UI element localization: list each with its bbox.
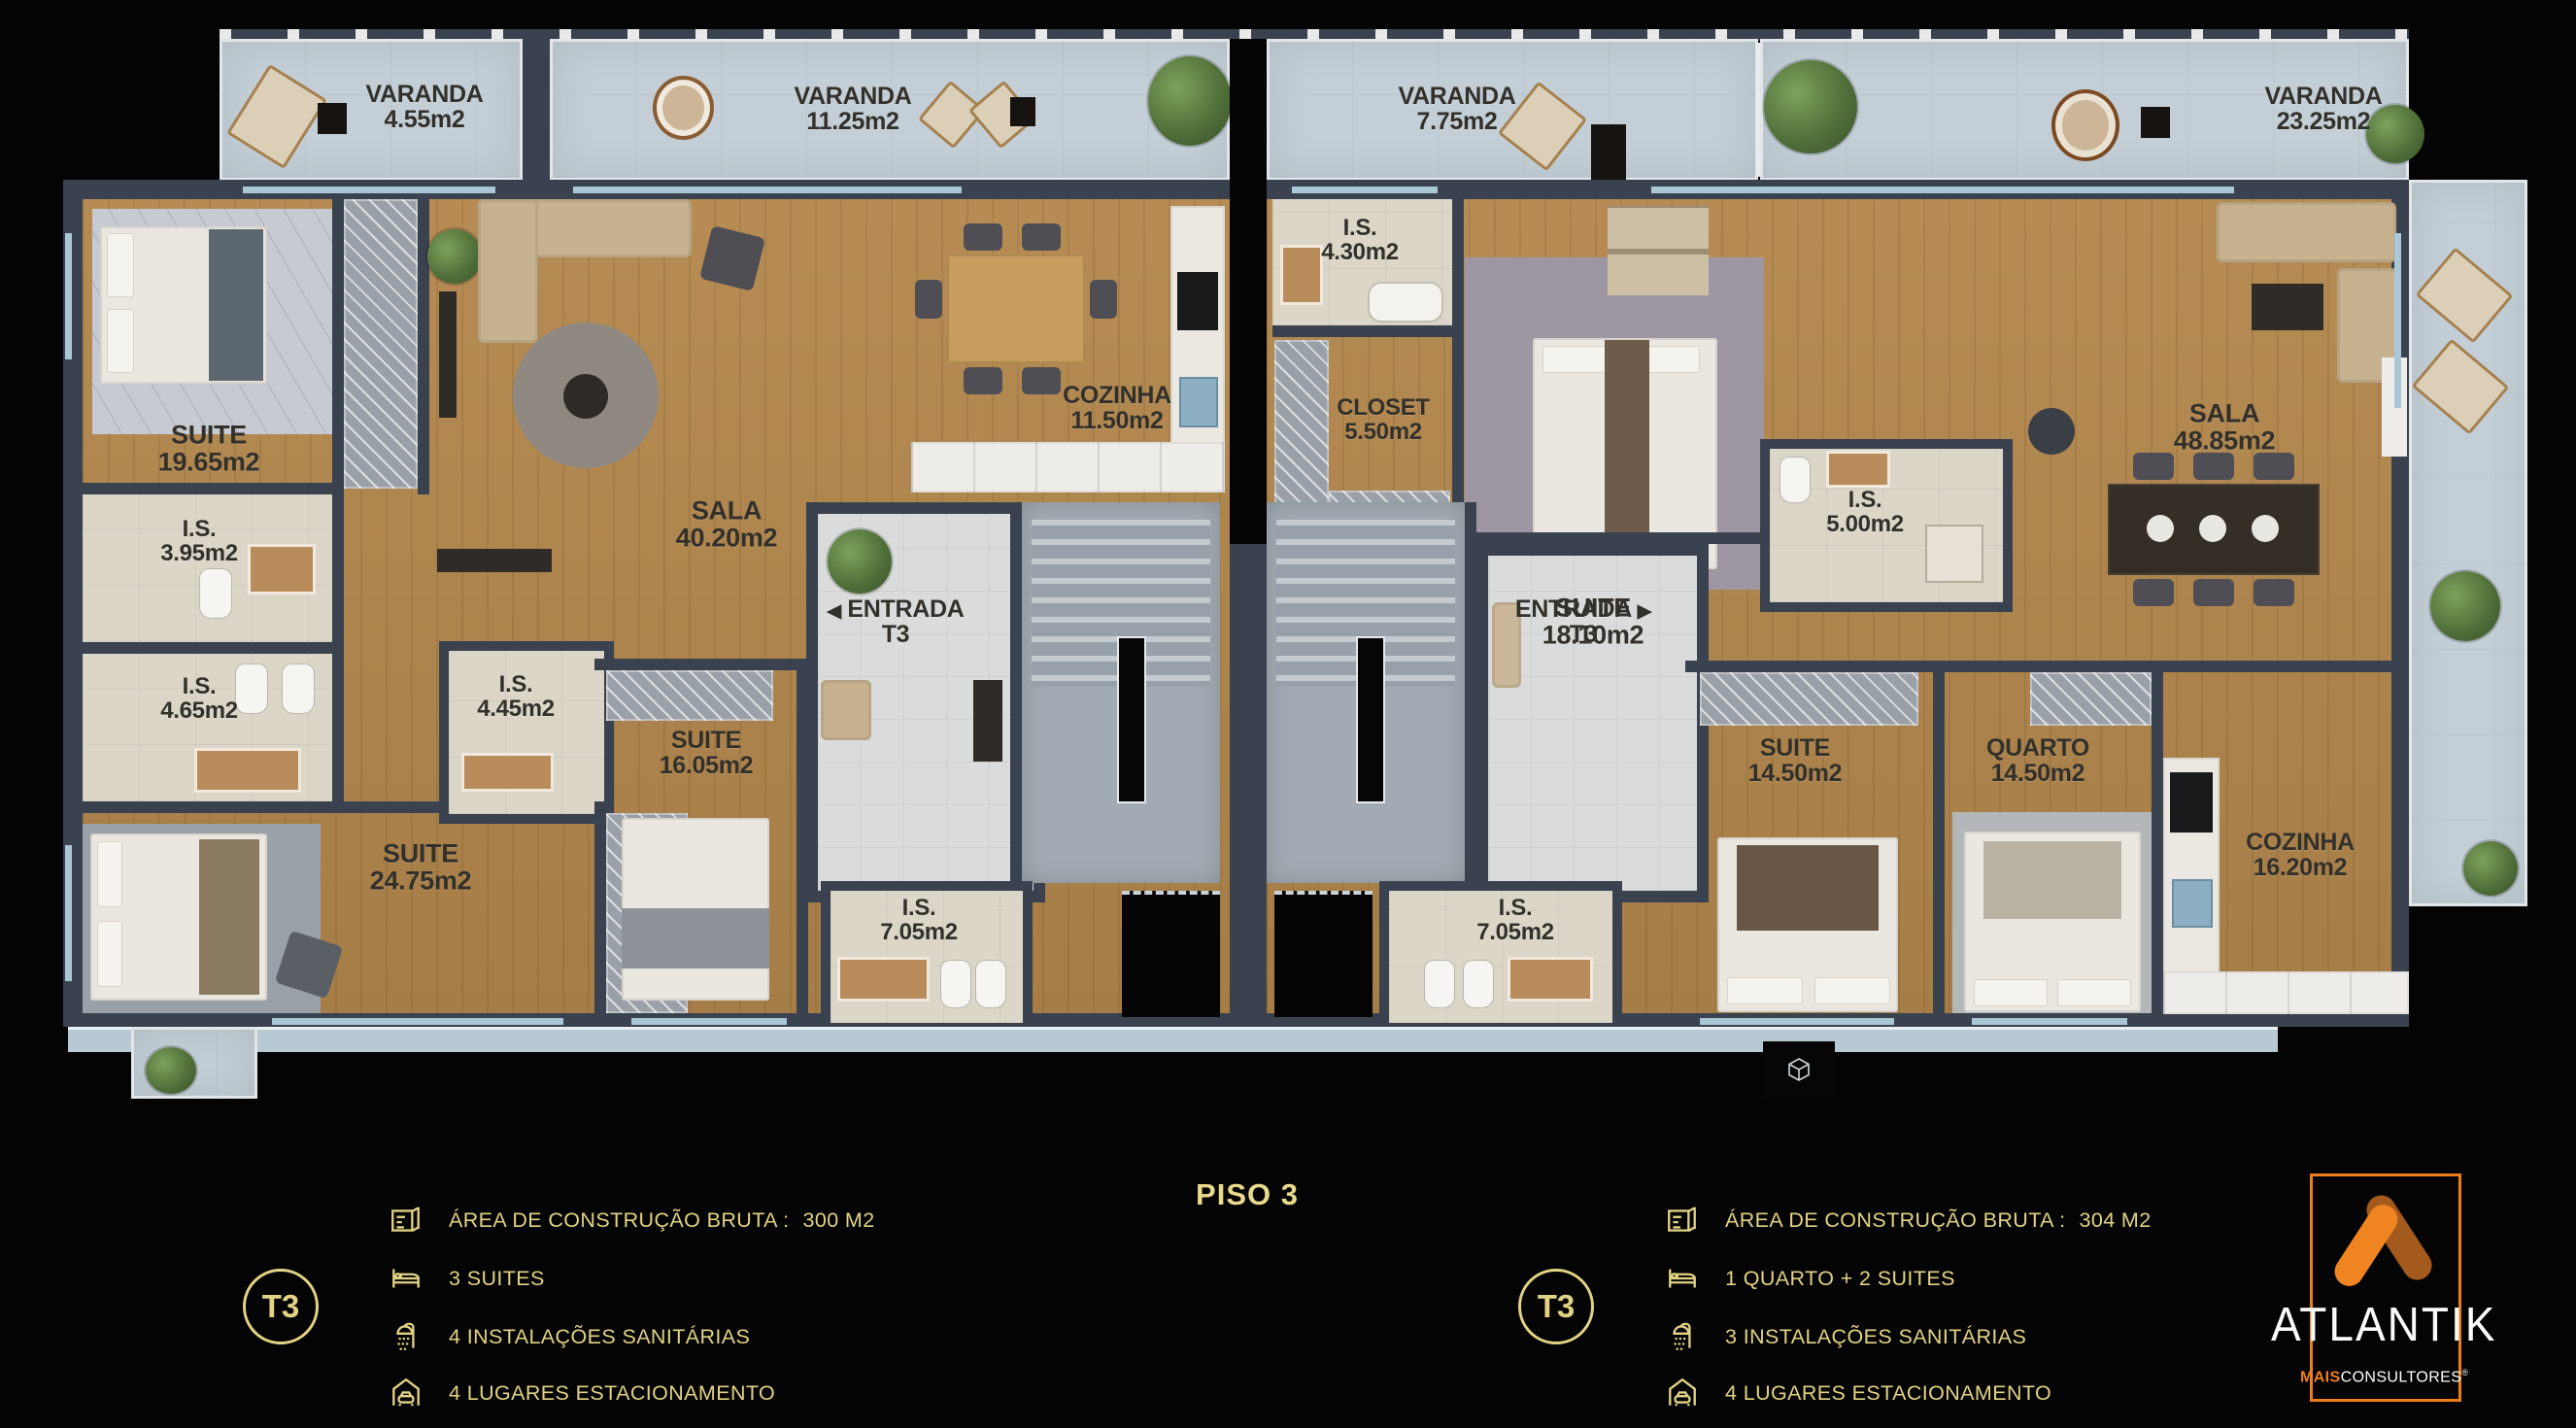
window [631, 1018, 787, 1025]
window [65, 845, 72, 981]
is500-shower [1925, 525, 1983, 583]
egg-chair [653, 76, 714, 140]
elevator-shaft [1274, 891, 1373, 1017]
shower-icon [1665, 1319, 1700, 1354]
is445-room [439, 641, 614, 824]
atlantik-a-mark [2330, 1190, 2437, 1297]
wall [1685, 661, 2409, 672]
balcony-table [2141, 107, 2170, 138]
legend-label: 3 INSTALAÇÕES SANITÁRIAS [1725, 1325, 2026, 1349]
is705R-bidet [1424, 960, 1455, 1008]
room-label-is-395: I.S.3.95m2 [160, 517, 238, 565]
bed-icon [1665, 1261, 1700, 1296]
bed-throw [622, 908, 769, 969]
is430-vanity [1280, 245, 1323, 305]
typology-badge-right: T3 [1518, 1269, 1594, 1344]
room-label-varanda-2325: VARANDA23.25m2 [2264, 84, 2382, 135]
is705L-bidet [975, 960, 1006, 1008]
kitchen-sink [2172, 879, 2213, 928]
is465-toilet [235, 663, 268, 714]
wall [332, 199, 344, 494]
room-label-is-430: I.S.4.30m2 [1321, 216, 1399, 264]
dining-chair [2193, 579, 2234, 606]
window [65, 233, 72, 359]
wall [2152, 672, 2163, 1013]
wall [1452, 532, 1773, 544]
bed-pillow [97, 841, 122, 907]
balcony-table [318, 103, 347, 134]
blueprint-icon [1665, 1203, 1700, 1238]
wall [594, 801, 606, 1013]
dining-chair [2254, 453, 2294, 480]
room-label-suite-2475: SUITE24.75m2 [370, 840, 472, 896]
legend-right-parking-row: 4 LUGARES ESTACIONAMENTO [1665, 1374, 2051, 1412]
wall [332, 494, 344, 801]
brand-tagline: MAISCONSULTORES® [2300, 1368, 2465, 1386]
window [243, 187, 495, 193]
dining-chair [964, 367, 1002, 394]
legend-label: 4 INSTALAÇÕES SANITÁRIAS [449, 1325, 750, 1349]
wall [1010, 502, 1022, 883]
kitchen2-appliance-row [2163, 971, 2409, 1014]
wardrobe [344, 199, 418, 489]
legend-left-suites-row: 3 SUITES [389, 1259, 545, 1298]
entrada-plant [828, 529, 892, 594]
room-label-is-465: I.S.4.65m2 [160, 674, 238, 723]
legend-label: 3 SUITES [449, 1267, 545, 1291]
dining-chair [2193, 453, 2234, 480]
balcony-plant [1764, 60, 1857, 153]
kitchen-sink [1179, 377, 1218, 427]
is395-vanity [248, 544, 316, 595]
cube-icon [1786, 1057, 1812, 1082]
bed-throw [209, 229, 263, 381]
bed-throw [1737, 845, 1879, 931]
bed-pillow [107, 233, 134, 297]
wall [1933, 672, 1945, 1013]
balcony-plant [1148, 56, 1232, 146]
room-label-sala-4885: SALA48.85m2 [2174, 400, 2276, 456]
legend-label: ÁREA DE CONSTRUÇÃO BRUTA :304 M2 [1725, 1208, 2152, 1233]
car-garage-icon [1665, 1376, 1700, 1411]
is500-toilet [1779, 457, 1811, 503]
elevator-shaft [1122, 891, 1220, 1017]
balcony-table [1010, 97, 1035, 126]
room-label-closet-550: CLOSET5.50m2 [1337, 395, 1430, 444]
entrance-arrow-icon: ▶ [1638, 601, 1651, 622]
car-garage-icon [389, 1376, 424, 1411]
sala-tv-unit [439, 291, 457, 418]
entrada-console [973, 680, 1002, 762]
brand-wordmark: ATLANTIK [2271, 1296, 2494, 1351]
hanging-chair [2051, 89, 2119, 161]
is705R-toilet [1463, 960, 1494, 1008]
room-label-suite-1450: SUITE14.50m2 [1748, 735, 1843, 787]
balcony-divider-wall [523, 39, 550, 181]
wall [1452, 199, 1464, 544]
window [573, 187, 962, 193]
floor-title: PISO 3 [1196, 1177, 1299, 1212]
room-label-is-500: I.S.5.00m2 [1826, 488, 1904, 536]
dining-chair [915, 280, 942, 319]
bed-pillow [107, 309, 134, 373]
legend-left-bath-row: 4 INSTALAÇÕES SANITÁRIAS [389, 1317, 750, 1356]
bed-pillow [1974, 979, 2048, 1006]
is430-bathtub [1368, 282, 1443, 323]
is465-bidet [282, 663, 315, 714]
window [1700, 1018, 1894, 1025]
room-label-cozinha-1620: COZINHA16.20m2 [2246, 830, 2355, 881]
quarto-closet [2030, 672, 2152, 726]
floorplan-page: { "floor_title": "PISO 3", "colors": { "… [0, 0, 2576, 1428]
dining-chair [1022, 367, 1061, 394]
bed-throw [1983, 841, 2121, 919]
room-label-varanda-1125: VARANDA11.25m2 [794, 84, 911, 135]
wall [83, 483, 344, 494]
legend-right-area-row: ÁREA DE CONSTRUÇÃO BRUTA :304 M2 [1665, 1201, 2152, 1240]
plate [2199, 515, 2226, 542]
sala-credenza [437, 549, 552, 572]
dining-chair [1090, 280, 1117, 319]
legend-left-parking-row: 4 LUGARES ESTACIONAMENTO [389, 1374, 775, 1412]
room-label-entrada-right: ENTRADA ▶ T3 [1515, 596, 1651, 648]
window [272, 1018, 563, 1025]
round-side-table [2028, 408, 2075, 455]
bottom-ledge [68, 1027, 2278, 1052]
legend-left-area-row: ÁREA DE CONSTRUÇÃO BRUTA :300 M2 [389, 1201, 875, 1240]
sala2-coffee-table [2252, 284, 2323, 330]
central-void [1230, 39, 1267, 544]
terrace-plant [2463, 841, 2518, 896]
window [1972, 1018, 2127, 1025]
is705L-vanity [837, 957, 930, 1002]
shower-icon [389, 1319, 424, 1354]
room-label-suite-1605: SUITE16.05m2 [660, 728, 754, 779]
window [2394, 233, 2401, 408]
dining-chair [2254, 579, 2294, 606]
balcony-table [1591, 124, 1626, 185]
dining-chair [2133, 453, 2174, 480]
room-label-suite-1965: SUITE19.65m2 [158, 422, 260, 477]
plate [2252, 515, 2279, 542]
room-label-quarto-1450: QUARTO14.50m2 [1986, 735, 2089, 787]
terrace-plant [2430, 571, 2500, 641]
window [1292, 187, 1438, 193]
is395-toilet [199, 568, 232, 619]
entrada-bench [821, 680, 871, 740]
pouf-set [1608, 206, 1709, 295]
room-label-entrada-left: ◀ ENTRADA T3 [827, 596, 964, 648]
sala-coffee-table [563, 374, 608, 419]
is705L-toilet [940, 960, 971, 1008]
window [1651, 187, 2234, 193]
room-label-is-705-right: I.S.7.05m2 [1476, 896, 1554, 944]
blueprint-icon [389, 1203, 424, 1238]
kitchen-appliance-row [911, 442, 1225, 493]
legend-label: 4 LUGARES ESTACIONAMENTO [1725, 1381, 2051, 1406]
legend-right-bath-row: 3 INSTALAÇÕES SANITÁRIAS [1665, 1317, 2026, 1356]
is445-vanity [461, 753, 554, 792]
suite14-closet [1700, 672, 1918, 726]
room-label-sala-4020: SALA40.20m2 [676, 497, 778, 553]
service-box [1763, 1041, 1835, 1098]
is465-vanity [194, 748, 301, 793]
bed-pillow [2057, 979, 2131, 1006]
central-core-wall [1230, 544, 1267, 1027]
room-label-cozinha-1150: COZINHA11.50m2 [1063, 383, 1171, 434]
bed-pillow [1542, 346, 1614, 373]
room-label-varanda-455: VARANDA4.55m2 [365, 82, 483, 133]
dining-chair [1022, 223, 1061, 251]
is705R-vanity [1508, 957, 1593, 1002]
sala2-sofa [2217, 202, 2396, 262]
sala-sofa-chaise [478, 199, 538, 343]
plate [2147, 515, 2174, 542]
bed-pillow [1727, 977, 1803, 1004]
stair-void [1117, 636, 1146, 803]
cooktop [1177, 272, 1218, 330]
balcony-plant [146, 1047, 196, 1094]
bed-pillow [1814, 977, 1890, 1004]
wall [418, 199, 429, 494]
sala-plant [427, 229, 482, 284]
stair-void [1356, 636, 1385, 803]
bed-pillow [97, 921, 122, 987]
cooktop [2170, 772, 2213, 833]
legend-label: ÁREA DE CONSTRUÇÃO BRUTA :300 M2 [449, 1208, 875, 1233]
room-label-is-445: I.S.4.45m2 [477, 672, 555, 721]
registered-icon: ® [2461, 1368, 2468, 1377]
typology-badge-left: T3 [243, 1269, 319, 1344]
legend-label: 1 QUARTO + 2 SUITES [1725, 1267, 1955, 1291]
suite16-closet [606, 670, 773, 721]
dining-chair [964, 223, 1002, 251]
dining-table [947, 255, 1085, 363]
bed-throw [199, 839, 259, 995]
entrance-arrow-icon: ◀ [827, 601, 840, 622]
legend-label: 4 LUGARES ESTACIONAMENTO [449, 1381, 775, 1406]
bed-icon [389, 1261, 424, 1296]
wall [1465, 502, 1476, 883]
wall [83, 642, 332, 654]
room-label-varanda-775: VARANDA7.75m2 [1398, 84, 1515, 135]
room-label-is-705-left: I.S.7.05m2 [880, 896, 958, 944]
dining-chair [2133, 579, 2174, 606]
is500-vanity [1826, 451, 1890, 488]
wall [594, 659, 808, 670]
legend-right-rooms-row: 1 QUARTO + 2 SUITES [1665, 1259, 1955, 1298]
